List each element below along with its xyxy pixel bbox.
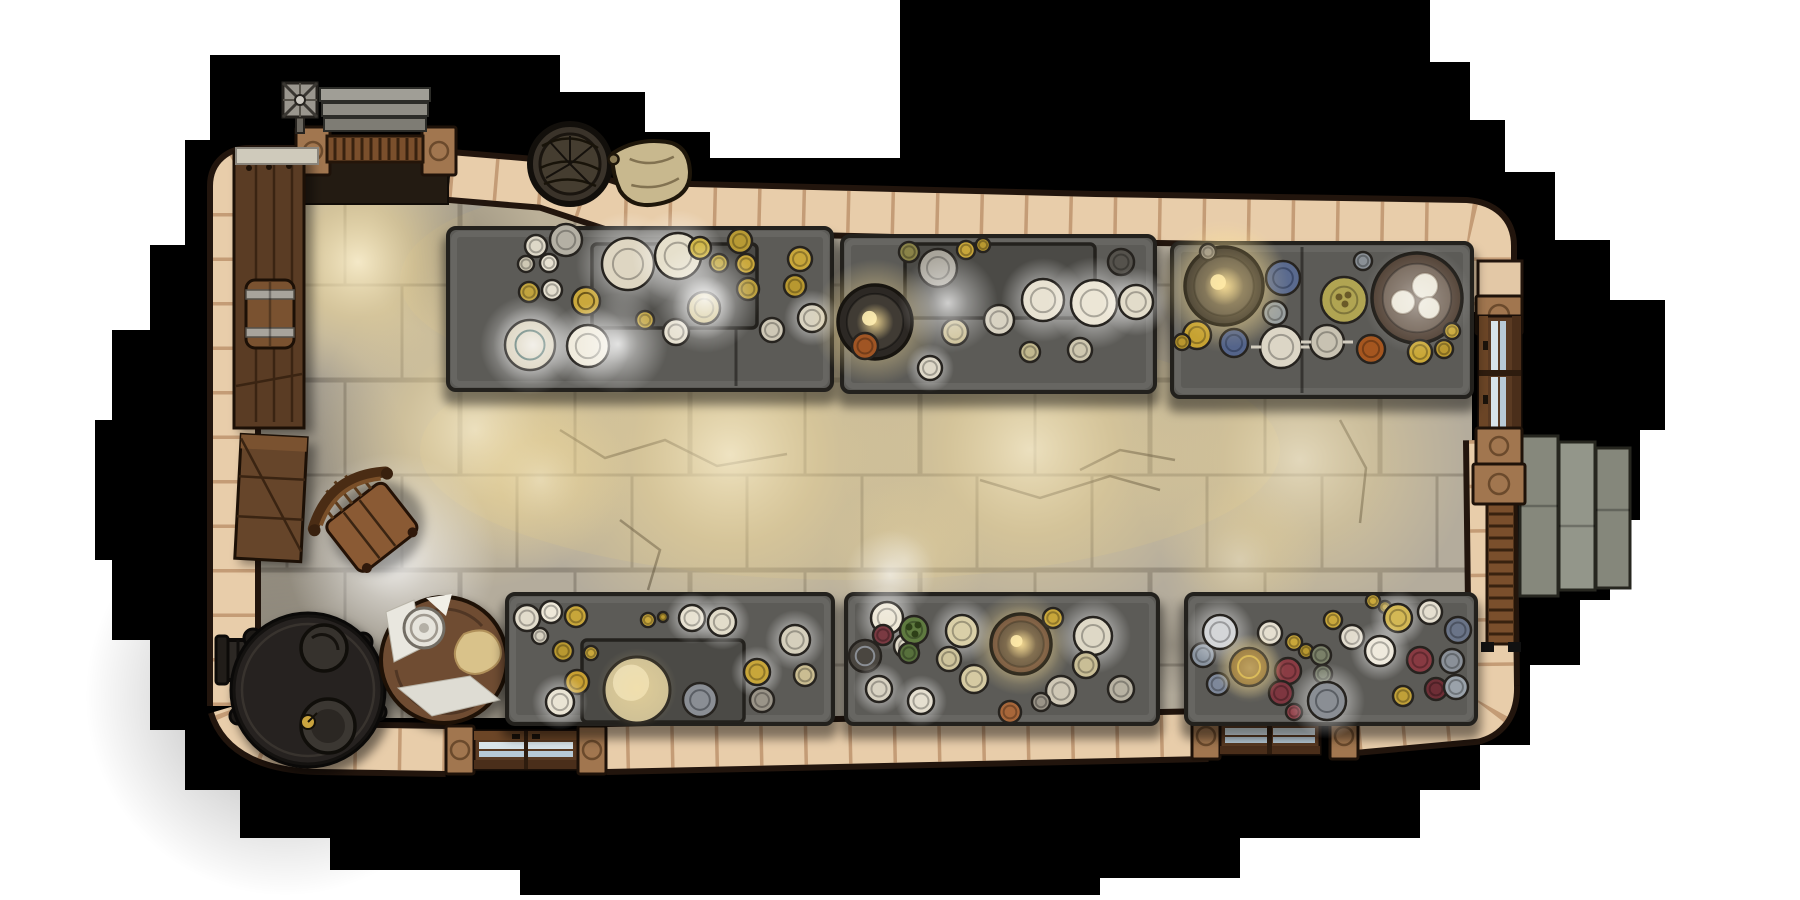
plate — [999, 701, 1021, 723]
dough-lump — [455, 630, 501, 674]
plate — [542, 280, 562, 300]
battle-map-canvas[interactable] — [0, 0, 1800, 900]
plate — [873, 625, 893, 645]
right-ladder[interactable] — [1481, 504, 1521, 652]
food-morsel — [1336, 294, 1343, 301]
door-handle[interactable] — [1483, 395, 1488, 404]
plate — [1444, 675, 1468, 699]
vane-hub — [295, 95, 305, 105]
light-glow — [568, 294, 668, 394]
plate — [550, 224, 582, 256]
plate — [1074, 617, 1112, 655]
plate — [1068, 338, 1092, 362]
right-platform — [1520, 436, 1630, 596]
plate — [780, 625, 810, 655]
plate — [1020, 342, 1040, 362]
food-morsel — [915, 622, 922, 629]
plate — [1445, 617, 1471, 643]
door-glass — [1491, 321, 1498, 371]
plate — [1440, 649, 1464, 673]
plate — [1308, 682, 1346, 720]
plate — [899, 643, 919, 663]
plate — [760, 318, 784, 342]
plate — [1108, 676, 1134, 702]
plate — [1407, 647, 1433, 673]
plate — [728, 229, 752, 253]
battle-map[interactable] — [0, 0, 1800, 900]
shelf-hinge — [246, 165, 252, 171]
light-glow — [493, 305, 573, 385]
entrance-ladder[interactable] — [327, 136, 423, 162]
vane-stem — [296, 117, 304, 133]
sack-tie — [608, 154, 619, 165]
door-glass — [479, 742, 524, 749]
plate — [540, 601, 562, 623]
plate — [908, 688, 934, 714]
plate — [565, 605, 587, 627]
plate — [744, 659, 770, 685]
stew-glow — [862, 311, 877, 326]
plate — [918, 356, 942, 380]
light-glow — [1169, 227, 1289, 347]
plate — [1119, 285, 1153, 319]
ladder-foot — [1508, 642, 1521, 652]
plate — [514, 605, 540, 631]
plate — [1321, 277, 1367, 323]
plate — [899, 242, 919, 262]
plate — [852, 333, 878, 359]
plate — [708, 608, 736, 636]
stove-burner-north — [301, 625, 347, 671]
plate — [788, 247, 812, 271]
light-glow — [845, 530, 935, 620]
door-pillar-south-2 — [1473, 464, 1525, 504]
right-door[interactable] — [1473, 261, 1525, 504]
stone-step-3 — [324, 118, 426, 131]
plate — [540, 254, 558, 272]
plate — [750, 688, 774, 712]
door-glass — [1491, 377, 1498, 427]
platform-slab — [1559, 442, 1595, 590]
barrel[interactable] — [246, 280, 294, 348]
plate — [553, 641, 573, 661]
plate — [683, 683, 717, 717]
platform-slab — [1520, 436, 1558, 596]
plate — [1311, 645, 1331, 665]
door-glass — [1500, 377, 1506, 427]
light-glow — [898, 253, 998, 353]
plate — [1354, 252, 1372, 270]
storage-basket[interactable] — [530, 124, 610, 204]
plate — [1310, 325, 1344, 359]
light-glow — [1215, 633, 1285, 703]
plate — [937, 647, 961, 671]
stone-step-1 — [320, 88, 430, 101]
plate — [900, 616, 928, 644]
platform-slab — [1596, 448, 1630, 588]
door-pillar-south — [1476, 428, 1522, 464]
door-divider — [1479, 370, 1521, 376]
light-glow — [982, 605, 1062, 685]
door-handle[interactable] — [1483, 341, 1488, 350]
plate — [866, 676, 892, 702]
plate — [1032, 693, 1050, 711]
light-glow — [597, 648, 677, 728]
door-glass — [1500, 321, 1506, 371]
food-morsel — [912, 631, 919, 638]
light-glow — [1363, 245, 1473, 355]
food-morsel — [906, 624, 913, 631]
ladder-foot — [1481, 642, 1494, 652]
stove-pipe-cap — [216, 636, 228, 684]
plate — [1418, 600, 1442, 624]
shelf-top-board — [236, 148, 318, 164]
door-glass — [479, 751, 524, 757]
plate — [1365, 636, 1395, 666]
door-glass — [528, 751, 573, 757]
plate — [1073, 652, 1099, 678]
wooden-crate[interactable] — [234, 434, 316, 568]
plate — [525, 235, 547, 257]
plate — [794, 664, 816, 686]
door-glass — [528, 742, 573, 749]
food-morsel — [1342, 301, 1349, 308]
food-morsel — [1345, 292, 1352, 299]
plate — [1324, 611, 1342, 629]
flour-jar-center — [419, 623, 429, 633]
stone-step-2 — [322, 103, 428, 116]
plate — [1393, 686, 1413, 706]
entrance-pillar-east — [422, 127, 456, 175]
plate — [546, 688, 574, 716]
